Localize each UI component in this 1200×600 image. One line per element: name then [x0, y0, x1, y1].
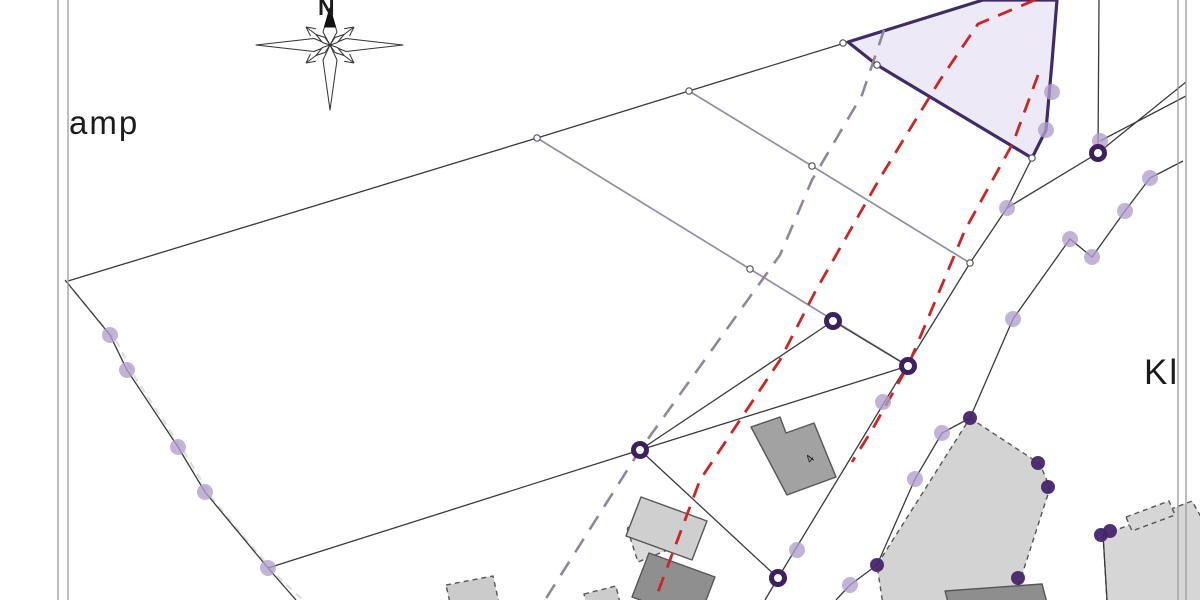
boundary-point-dot: [842, 577, 858, 593]
boundary-point-dot: [789, 542, 805, 558]
vertex-circle: [686, 88, 692, 94]
building-center-dark: [632, 553, 715, 600]
cadastral-map[interactable]: [0, 0, 1200, 600]
boundary-point-dot: [875, 394, 891, 410]
survey-ring-point: [772, 572, 785, 585]
boundary-point-dot: [1005, 311, 1021, 327]
compass-north-label: N: [318, 0, 337, 19]
boundary-point-dot: [1062, 231, 1078, 247]
survey-line-1: [689, 91, 970, 263]
ne-boundary-1: [1098, 82, 1186, 153]
north-parcel-boundary: [68, 42, 848, 281]
ne-boundary-2: [1100, 96, 1186, 141]
vertex-circle: [840, 40, 846, 46]
compass-point-west: [256, 39, 330, 52]
vertex-circle: [534, 135, 540, 141]
boundary-point-dot: [170, 439, 186, 455]
survey-ring-point: [827, 315, 840, 328]
vertex-circle: [747, 266, 753, 272]
boundary-point-dot: [907, 471, 923, 487]
boundary-point-dot: [1084, 249, 1100, 265]
boundary-point-dot: [1117, 203, 1133, 219]
building-big-east: [877, 418, 1050, 600]
survey-ring-point: [1092, 147, 1105, 160]
boundary-point-dot: [1038, 122, 1054, 138]
boundary-point-dot: [260, 560, 276, 576]
building-corner-point: [1031, 456, 1045, 470]
building-corner-point: [963, 411, 977, 425]
boundary-point-dot: [1142, 170, 1158, 186]
south-parcel-boundary: [268, 450, 640, 568]
building-corner-point: [1011, 571, 1025, 585]
boundary-point-dot: [119, 362, 135, 378]
compass-point-south: [323, 45, 337, 110]
compass-point-east: [330, 39, 403, 52]
building-corner-point: [1041, 480, 1055, 494]
building-south-small: [584, 586, 622, 600]
building-4: [751, 417, 836, 495]
boundary-point-dot: [102, 327, 118, 343]
building-corner-point: [1103, 524, 1117, 538]
survey-line-2: [537, 138, 908, 366]
boundary-point-dot: [1044, 84, 1060, 100]
street-label-right: Kl: [1144, 355, 1179, 390]
survey-ring-point: [902, 360, 915, 373]
vertex-circle: [967, 260, 973, 266]
boundary-point-dot: [999, 200, 1015, 216]
survey-ring-point: [634, 444, 647, 457]
vertex-circle: [1029, 155, 1035, 161]
highlighted-parcel[interactable]: [848, 0, 1057, 158]
inner-boundary-3: [833, 321, 908, 366]
road-north-segment: [1098, 0, 1099, 153]
vertex-circle: [874, 62, 880, 68]
building-southwest: [446, 576, 501, 600]
building-corner-point: [870, 558, 884, 572]
map-canvas[interactable]: N amp Kl 4: [0, 0, 1200, 600]
vertex-circle: [809, 163, 815, 169]
boundary-point-dot: [934, 425, 950, 441]
street-label-left: amp: [69, 106, 139, 139]
boundary-point-dot: [197, 484, 213, 500]
